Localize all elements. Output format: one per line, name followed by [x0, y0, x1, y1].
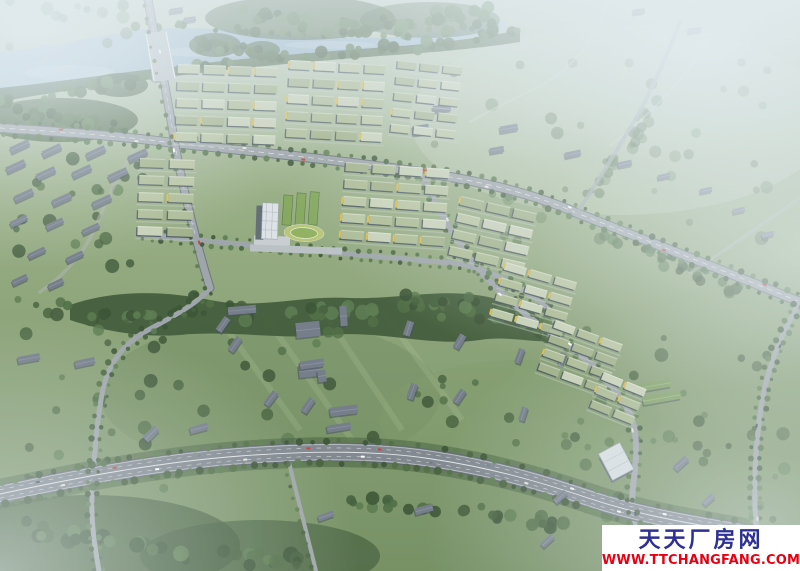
scene-canvas — [0, 0, 800, 571]
aerial-rendering: 天天厂房网 WWW.TTCHANGFANG.COM — [0, 0, 800, 571]
watermark: 天天厂房网 WWW.TTCHANGFANG.COM — [602, 525, 800, 571]
haze-overlays — [0, 0, 800, 571]
watermark-site-name: 天天厂房网 — [638, 530, 763, 552]
watermark-url: WWW.TTCHANGFANG.COM — [602, 554, 800, 567]
